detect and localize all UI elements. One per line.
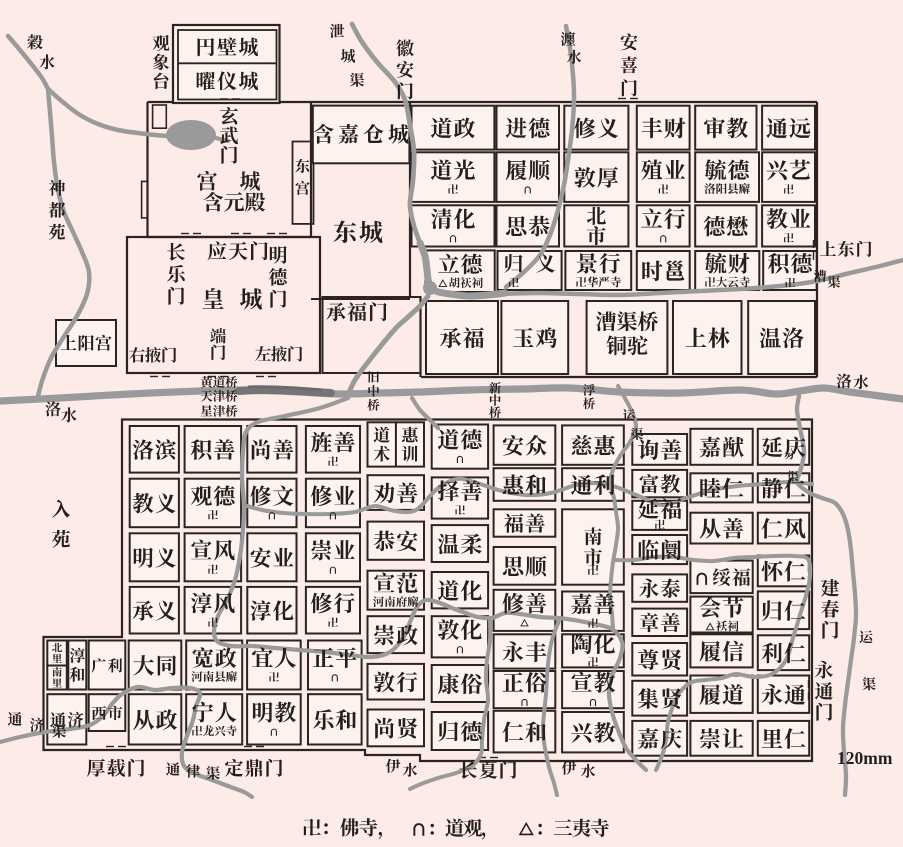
svg-text:120mm: 120mm — [837, 748, 893, 768]
